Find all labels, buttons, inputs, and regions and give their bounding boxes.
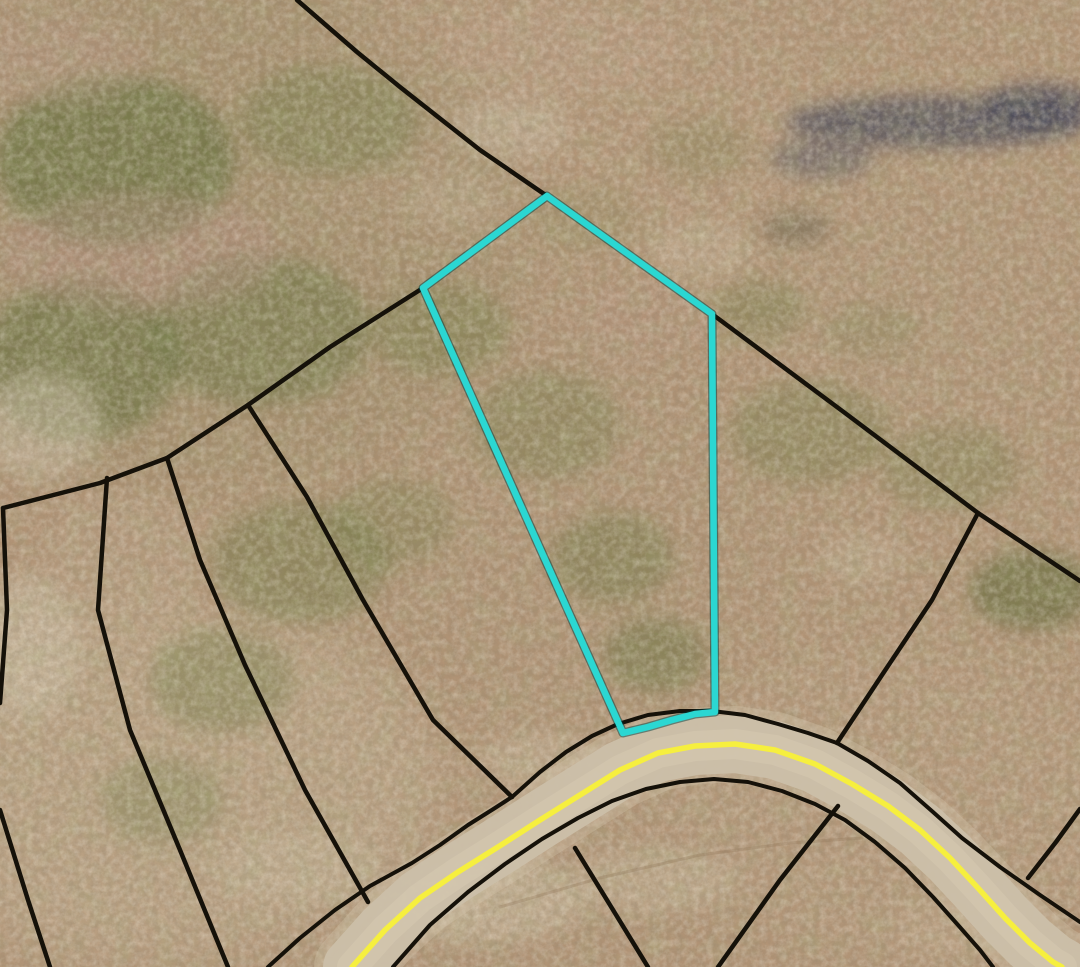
map-canvas	[0, 0, 1080, 967]
aerial-parcel-map	[0, 0, 1080, 967]
